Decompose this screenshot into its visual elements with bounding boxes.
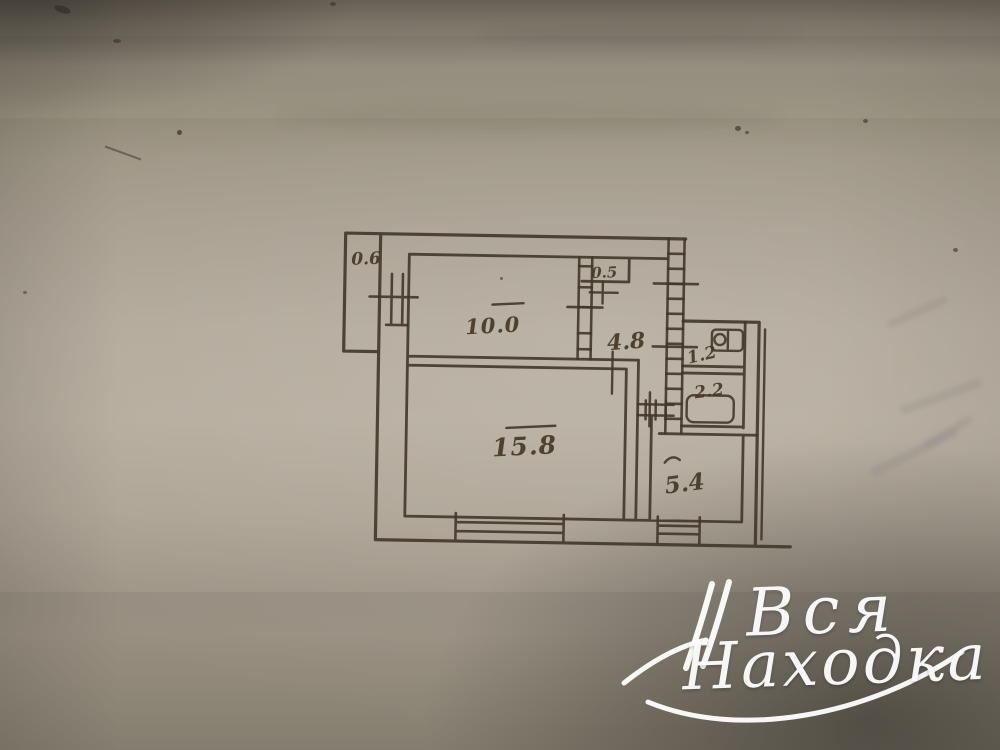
photographed-floor-plan: 0.6 10.0 0.5 4.8 1.2 2.2 15.8 5.4 Вся На… (0, 0, 1000, 750)
watermark-flourish (0, 0, 1000, 750)
watermark-flourish-strokes (686, 582, 729, 668)
watermark-flourish-swash (624, 640, 962, 720)
